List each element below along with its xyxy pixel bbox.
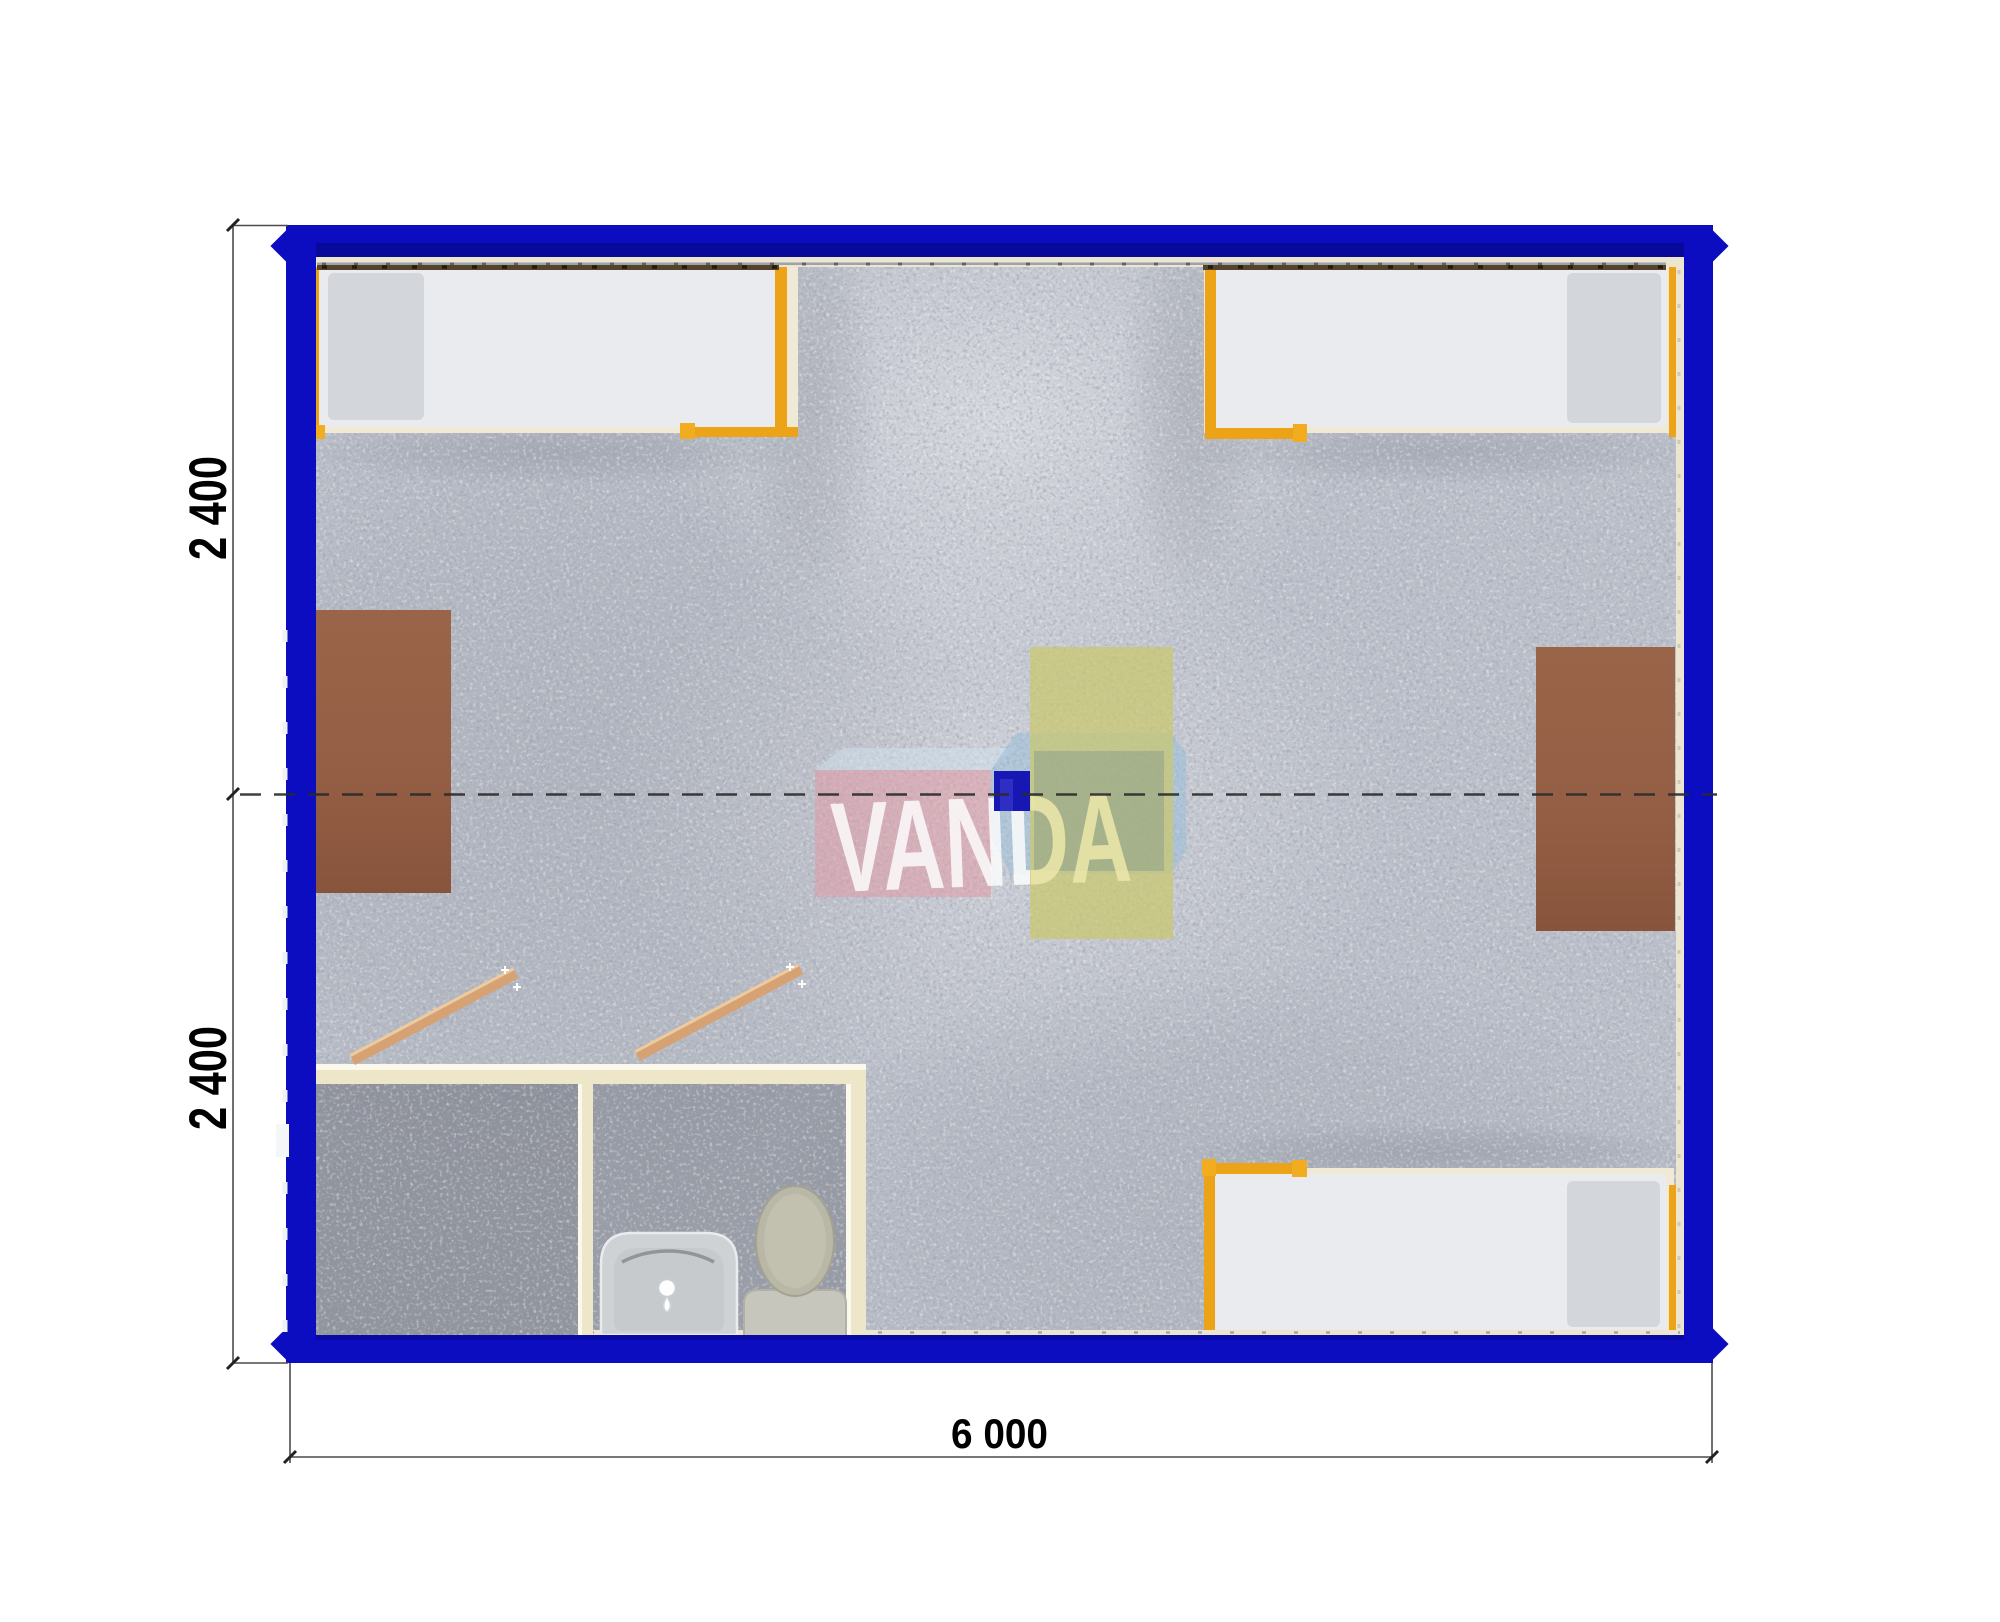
- svg-text:2 400: 2 400: [179, 456, 238, 560]
- svg-text:6 000: 6 000: [951, 1410, 1048, 1457]
- svg-text:2 400: 2 400: [179, 1026, 238, 1130]
